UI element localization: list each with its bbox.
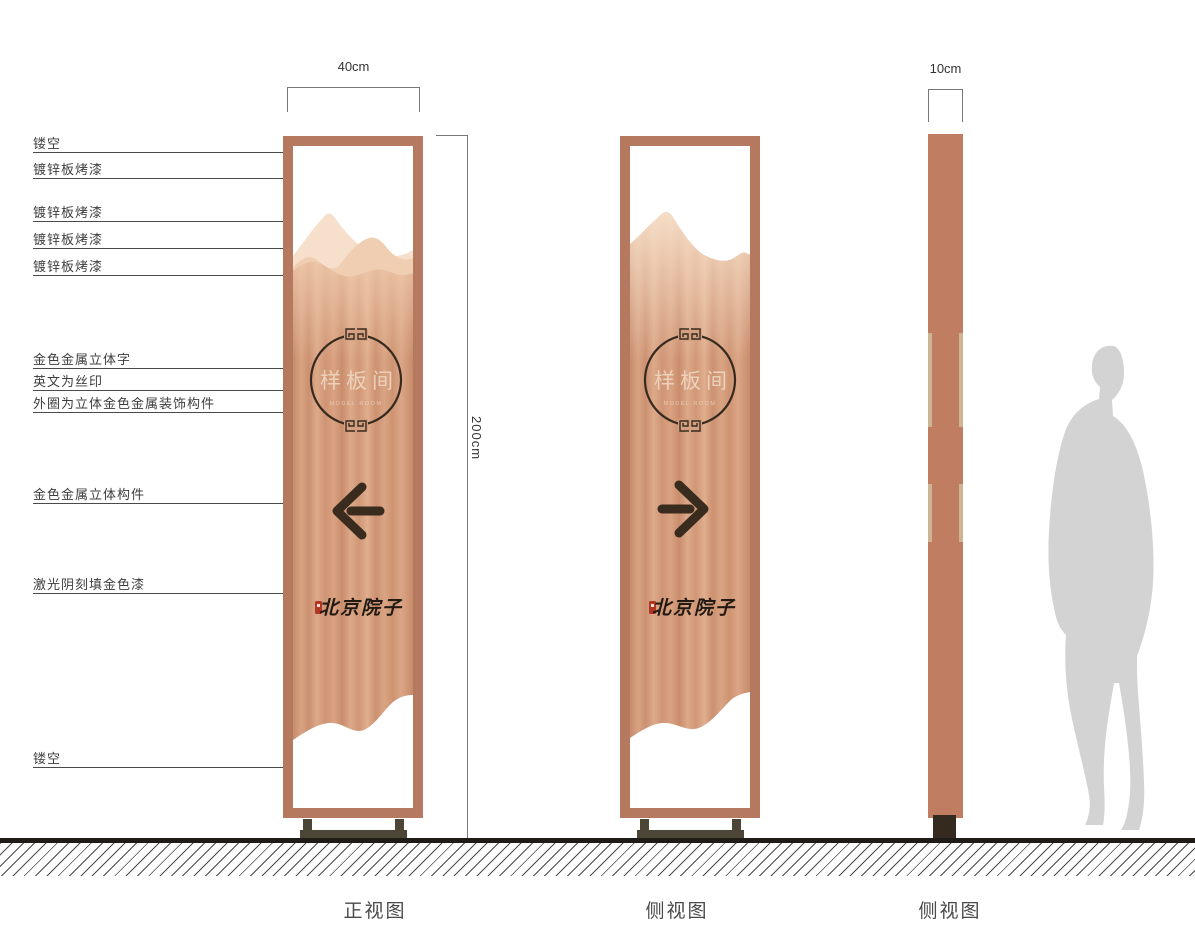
- profile-protrusion: [959, 333, 963, 427]
- brand-name-text: 北京院子: [319, 597, 403, 619]
- annotation-label: 镂空: [33, 133, 61, 152]
- view-label-profile: 侧视图: [890, 896, 1010, 923]
- dimension-tick: [419, 87, 420, 112]
- annotation-leader-line: [33, 767, 302, 768]
- profile-base-block: [933, 815, 956, 839]
- profile-protrusion: [928, 333, 932, 427]
- profile-protrusion: [928, 484, 932, 542]
- fret-ornament-bottom-icon: [678, 419, 702, 431]
- dimension-tick: [962, 89, 963, 122]
- annotation-label: 镀锌板烤漆: [33, 229, 103, 248]
- annotation-label: 镀锌板烤漆: [33, 202, 103, 221]
- human-silhouette: [1038, 340, 1168, 842]
- annotation-leader-line: [33, 248, 294, 249]
- annotation-leader-line: [33, 412, 313, 413]
- annotation-leader-line: [33, 221, 323, 222]
- profile-protrusion: [959, 484, 963, 542]
- dimension-tick: [928, 89, 929, 122]
- view-label-front: 正视图: [315, 896, 435, 923]
- front-width-dimension: 40cm: [287, 59, 420, 74]
- room-name-text: 样板间: [320, 369, 398, 393]
- view-label-side: 侧视图: [617, 896, 737, 923]
- brand-name-text: 北京院子: [652, 597, 736, 619]
- annotation-leader-line: [33, 178, 284, 179]
- sign-front-panel: 样板间 MODEL ROOM 北京院子: [293, 146, 413, 808]
- annotation-label: 英文为丝印: [33, 371, 103, 390]
- annotation-label: 金色金属立体构件: [33, 484, 145, 503]
- annotation-leader-line: [33, 593, 310, 594]
- annotation-label: 镂空: [33, 748, 61, 767]
- dimension-tick: [287, 87, 288, 112]
- annotation-label: 金色金属立体字: [33, 349, 131, 368]
- profile-depth-dimension: 10cm: [925, 61, 966, 76]
- dimension-line: [287, 87, 420, 88]
- dimension-tick: [436, 135, 467, 136]
- fret-ornament-bottom-icon: [344, 419, 368, 431]
- fret-ornament-top-icon: [678, 329, 702, 341]
- fret-ornament-top-icon: [344, 329, 368, 341]
- dimension-line: [928, 89, 963, 90]
- annotation-label: 镀锌板烤漆: [33, 256, 103, 275]
- signage-spec-sheet: 镂空 镀锌板烤漆 镀锌板烤漆 镀锌板烤漆 镀锌板烤漆 金色金属立体字 英文为丝印…: [0, 0, 1195, 927]
- annotation-leader-line: [33, 275, 291, 276]
- sign-profile-column: [928, 134, 963, 818]
- sign-side-panel: 样板间 MODEL ROOM 北京院子: [630, 146, 750, 808]
- room-name-text: 样板间: [654, 369, 732, 393]
- height-dimension-line: [467, 135, 468, 838]
- room-name-english-text: MODEL ROOM: [330, 401, 383, 407]
- annotation-label: 外圈为立体金色金属装饰构件: [33, 393, 215, 412]
- annotation-label: 镀锌板烤漆: [33, 159, 103, 178]
- annotation-label: 激光阴刻填金色漆: [33, 574, 145, 593]
- room-name-english-text: MODEL ROOM: [664, 401, 717, 407]
- annotation-leader-line: [33, 152, 307, 153]
- height-dimension: 200cm: [469, 416, 484, 460]
- ground-hatch: [0, 843, 1195, 876]
